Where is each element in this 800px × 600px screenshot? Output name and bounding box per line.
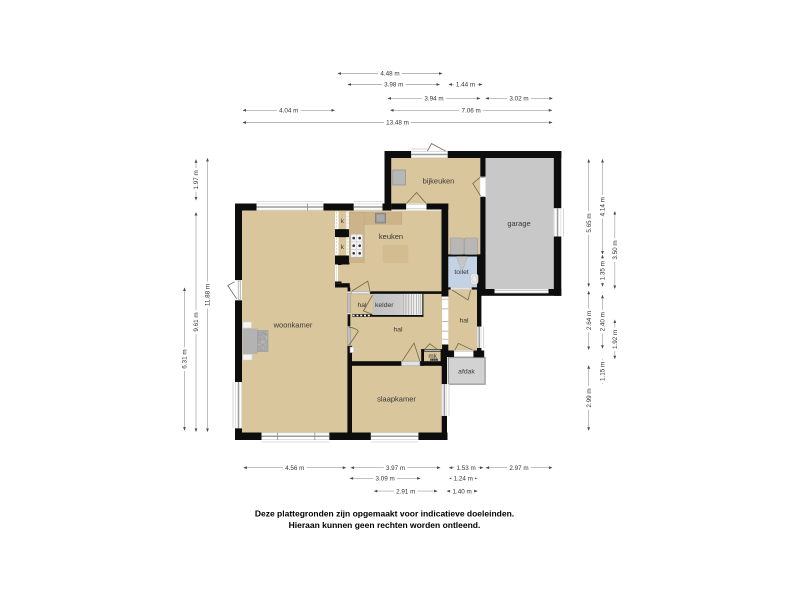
svg-text:4.04 m: 4.04 m [279,108,298,115]
svg-text:9.61 m: 9.61 m [193,312,200,331]
svg-text:1.44 m: 1.44 m [456,82,475,89]
svg-text:4.56 m: 4.56 m [285,465,304,472]
svg-text:4.14 m: 4.14 m [600,197,607,216]
svg-text:3.09 m: 3.09 m [375,476,394,483]
svg-text:1.35 m: 1.35 m [600,261,607,280]
svg-text:Hieraan kunnen geen rechten wo: Hieraan kunnen geen rechten worden ontle… [289,520,481,530]
svg-text:2.91 m: 2.91 m [396,488,415,495]
svg-text:slaapkamer: slaapkamer [377,395,416,404]
svg-text:2.99 m: 2.99 m [586,388,593,407]
svg-text:keuken: keuken [379,232,403,241]
svg-text:toilet: toilet [454,269,468,276]
svg-text:1.15 m: 1.15 m [600,362,607,381]
svg-text:11.88 m: 11.88 m [205,284,212,306]
svg-text:afdak: afdak [458,369,475,376]
svg-text:3.94 m: 3.94 m [424,96,443,103]
svg-text:Deze plattegronden zijn opgema: Deze plattegronden zijn opgemaakt voor i… [255,508,514,518]
svg-text:1.53 m: 1.53 m [456,465,475,472]
svg-text:2.64 m: 2.64 m [586,311,593,330]
svg-text:hal: hal [357,302,367,309]
svg-text:6.31 m: 6.31 m [182,349,189,368]
svg-text:5.65 m: 5.65 m [586,213,593,232]
svg-text:1.24 m: 1.24 m [454,476,473,483]
svg-text:3.50 m: 3.50 m [612,240,619,259]
svg-text:1.40 m: 1.40 m [453,488,472,495]
svg-text:hal: hal [459,318,469,325]
svg-text:3.97 m: 3.97 m [386,465,405,472]
svg-text:4.48 m: 4.48 m [380,71,399,78]
svg-text:kelder: kelder [375,302,394,309]
svg-text:3.02 m: 3.02 m [509,96,528,103]
svg-text:1.97 m: 1.97 m [193,170,200,189]
svg-text:woonkamer: woonkamer [273,321,313,330]
svg-text:13.48 m: 13.48 m [386,120,409,127]
svg-text:garage: garage [507,219,530,228]
svg-text:hal: hal [393,327,403,334]
svg-text:bijkeuken: bijkeuken [423,177,455,186]
svg-text:1.92 m: 1.92 m [612,330,619,349]
svg-text:mk: mk [428,353,437,360]
svg-text:2.40 m: 2.40 m [600,312,607,331]
svg-text:3.98 m: 3.98 m [384,82,403,89]
svg-text:2.97 m: 2.97 m [509,465,528,472]
svg-text:7.06 m: 7.06 m [462,108,481,115]
